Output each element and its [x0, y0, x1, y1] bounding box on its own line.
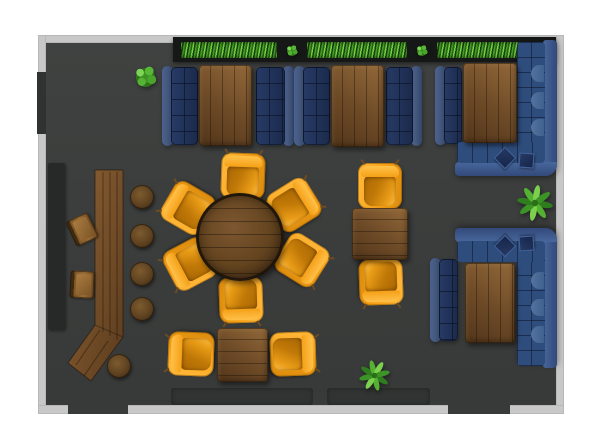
armchair-seat: [272, 338, 303, 371]
seat-bolster: [531, 119, 544, 136]
armchair-right-table-bottom: [358, 258, 404, 306]
bar-stool-5: [107, 354, 131, 378]
seat-bolster: [531, 272, 544, 289]
sofa-cushion: [303, 67, 330, 145]
armchair-backrest: [361, 166, 399, 177]
armchair-seat: [224, 279, 257, 310]
potted-plant-right: [517, 185, 553, 221]
armchair-seat: [364, 176, 396, 206]
armchair-backrest: [301, 334, 313, 372]
booth4-sofa-left: [430, 258, 458, 342]
bar-chair-2: [69, 270, 94, 298]
potted-shrub-large: [132, 64, 159, 91]
seat-bolster: [531, 299, 544, 316]
floor-plan-illustration: [0, 0, 600, 444]
armchair-seat: [180, 338, 211, 371]
seat-bolster: [531, 326, 544, 343]
seat-bolster: [531, 92, 544, 109]
round-dining-table: [196, 193, 284, 281]
bar-stool-2: [130, 224, 154, 248]
throw-pillow-square: [518, 152, 534, 168]
sofa-cushion: [386, 67, 413, 145]
armchair-round-bottom: [218, 276, 264, 324]
booth4-table: [465, 263, 515, 343]
seat-bolster: [531, 65, 544, 82]
bar-stool-4: [130, 297, 154, 321]
sofa-cushion: [171, 67, 198, 145]
booth2-sofa-left: [294, 66, 330, 146]
armchair-bottom-table-left: [167, 331, 215, 377]
armchair-right-table-top: [358, 163, 402, 209]
dining-table-bottom: [217, 328, 268, 382]
armchair-backrest: [222, 308, 260, 320]
booth1-sofa-left: [162, 66, 198, 146]
booth3-table: [463, 63, 517, 143]
armchair-backrest: [224, 155, 262, 167]
armchair-backrest: [170, 334, 182, 372]
booth1-table: [199, 65, 252, 146]
armchair-bottom-table-right: [269, 331, 317, 377]
sofa-backrest: [543, 228, 557, 368]
booth2-table: [331, 65, 384, 147]
sofa-backrest: [543, 40, 557, 176]
sofa-cushion: [256, 67, 285, 145]
armchair-seat: [226, 165, 259, 196]
booth2-sofa-right: [386, 66, 422, 146]
armchair-backrest: [362, 290, 400, 302]
bar-stool-1: [130, 185, 154, 209]
booth1-sofa-right: [256, 66, 294, 146]
potted-plant-bottom: [359, 360, 390, 391]
armchair-seat: [364, 261, 397, 292]
bar-stool-3: [130, 262, 154, 286]
dining-table-right: [352, 208, 408, 260]
throw-pillow-square: [518, 235, 534, 251]
